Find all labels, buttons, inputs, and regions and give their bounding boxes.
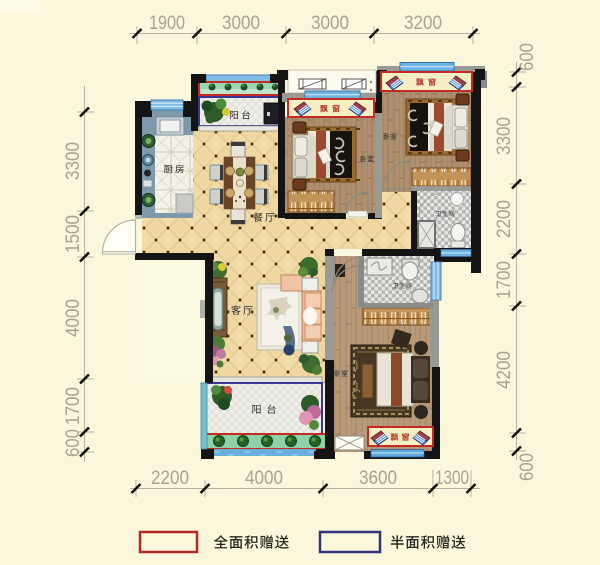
svg-text:3000: 3000 (311, 13, 349, 34)
svg-text:1900: 1900 (149, 13, 185, 34)
svg-text:4000: 4000 (63, 299, 84, 337)
svg-text:3200: 3200 (404, 13, 442, 34)
svg-text:1300: 1300 (435, 468, 469, 489)
svg-text:1700: 1700 (63, 387, 84, 425)
svg-text:4000: 4000 (245, 468, 283, 489)
svg-text:2200: 2200 (151, 468, 189, 489)
svg-text:2200: 2200 (494, 200, 515, 238)
svg-text:3300: 3300 (494, 117, 515, 155)
svg-text:1500: 1500 (63, 215, 84, 253)
svg-text:600: 600 (517, 453, 538, 481)
svg-text:600: 600 (517, 43, 538, 71)
svg-text:3300: 3300 (63, 142, 84, 180)
svg-text:3000: 3000 (222, 13, 260, 34)
svg-text:3600: 3600 (359, 468, 397, 489)
svg-text:4200: 4200 (494, 351, 515, 389)
svg-text:600: 600 (63, 429, 84, 457)
svg-text:1700: 1700 (494, 261, 515, 299)
